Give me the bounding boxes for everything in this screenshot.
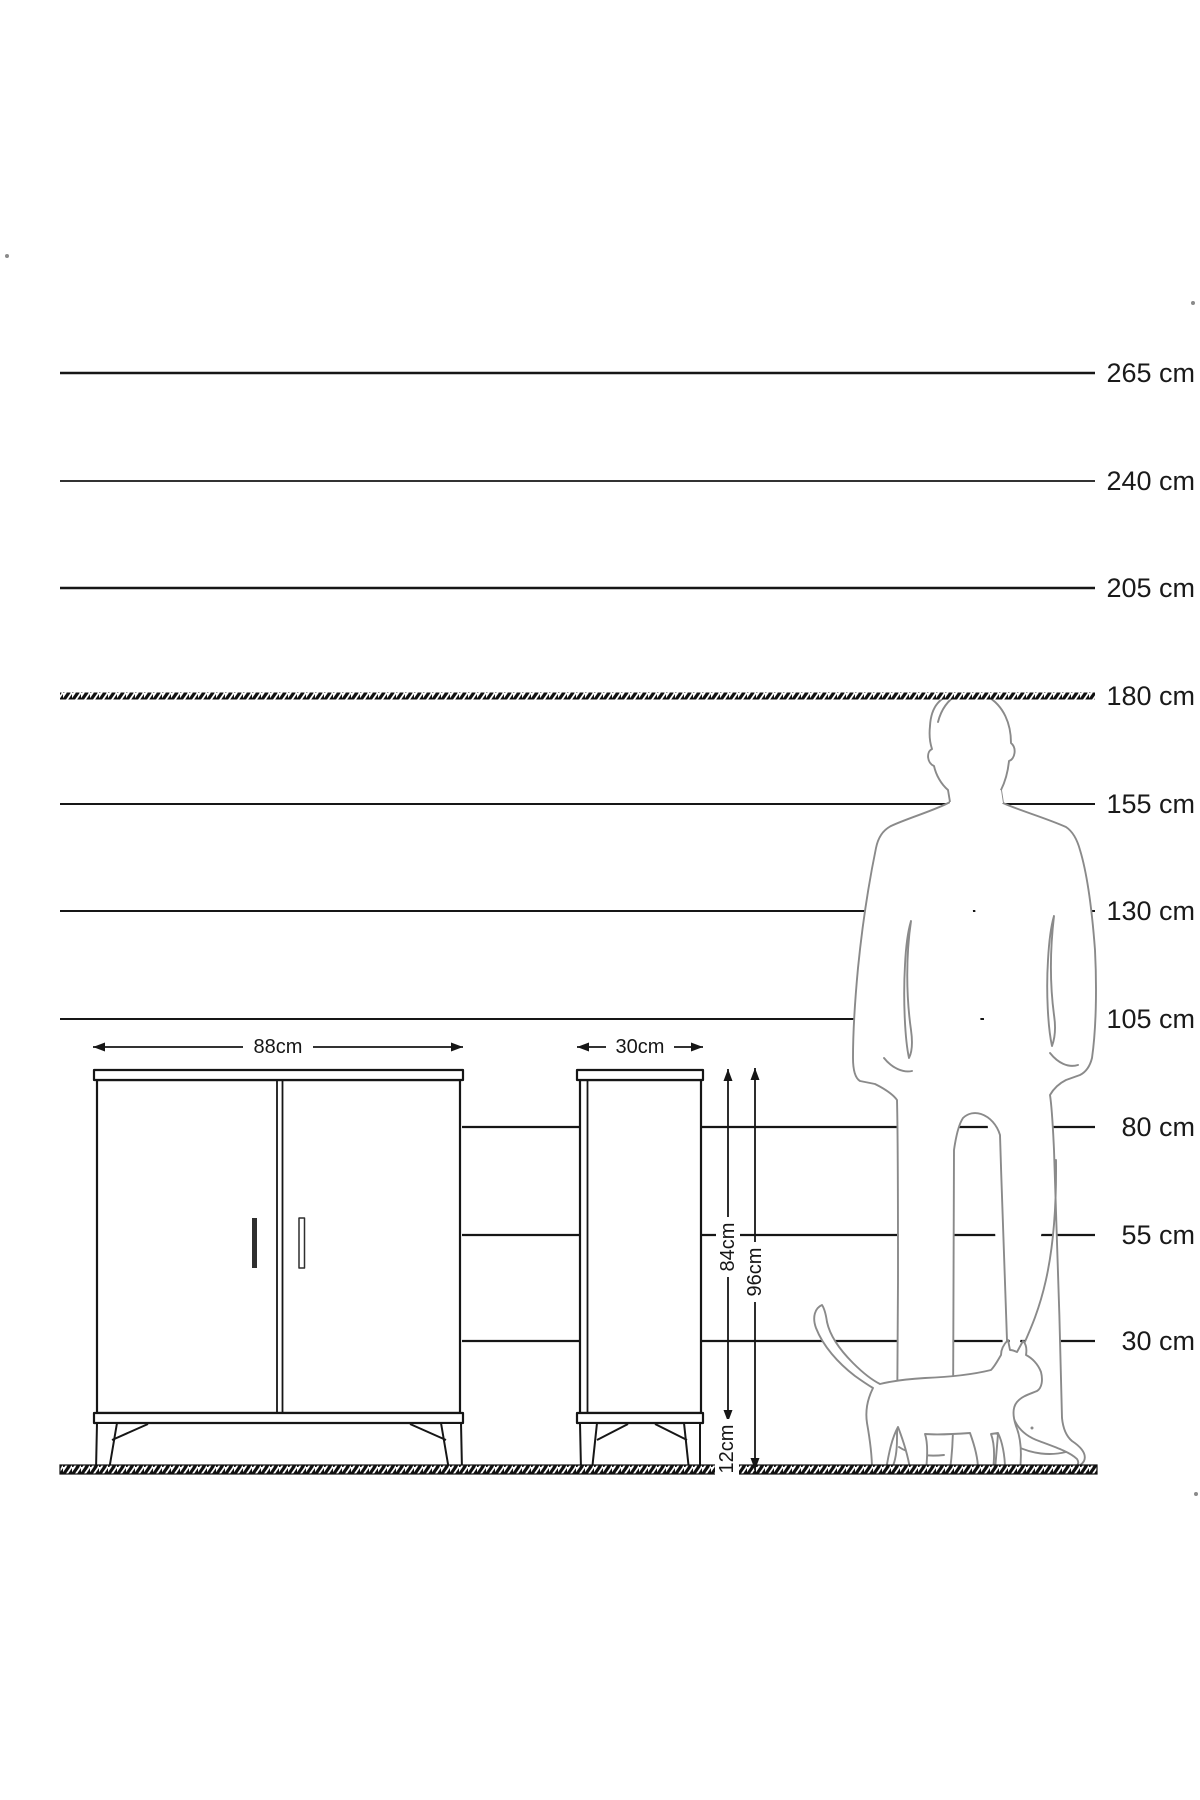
cabinet-leg — [441, 1423, 462, 1470]
cabinet-leg — [96, 1423, 117, 1470]
height-label-180: 180 cm — [1091, 679, 1195, 713]
door-handle-left — [252, 1218, 257, 1268]
ground-line — [60, 1465, 1097, 1474]
height-label-130: 130 cm — [1091, 894, 1195, 928]
height-label-80: 80 cm — [1091, 1110, 1195, 1144]
cabinet-front-view — [94, 1070, 463, 1470]
front-width-label: 88cm — [243, 1035, 313, 1059]
height-line-180-hatched — [60, 693, 1095, 700]
height-label-240: 240 cm — [1091, 464, 1195, 498]
height-label-205: 205 cm — [1091, 571, 1195, 605]
front-legs — [96, 1423, 462, 1470]
body-height-label: 84cm — [716, 1217, 740, 1277]
man-silhouette — [853, 693, 1096, 1470]
total-height-label: 96cm — [743, 1242, 767, 1302]
side-legs — [580, 1423, 700, 1470]
side-bottom-panel — [577, 1413, 703, 1423]
man-outline — [853, 693, 1096, 1470]
front-top-panel — [94, 1070, 463, 1080]
diagram-canvas — [0, 0, 1200, 1800]
cabinet-leg — [580, 1423, 597, 1470]
height-label-55: 55 cm — [1091, 1218, 1195, 1252]
scan-artifact-dot — [1191, 301, 1195, 305]
front-body — [97, 1080, 460, 1413]
side-body — [580, 1080, 701, 1413]
height-label-30: 30 cm — [1091, 1324, 1195, 1358]
cabinet-leg — [684, 1423, 700, 1470]
front-bottom-panel — [94, 1413, 463, 1423]
height-label-155: 155 cm — [1091, 787, 1195, 821]
cabinet-side-view — [577, 1070, 703, 1470]
door-handle-right — [299, 1218, 305, 1268]
dimension-diagram: 265 cm 240 cm 205 cm 180 cm 155 cm 130 c… — [0, 0, 1200, 1800]
leg-height-label: 12cm — [715, 1419, 739, 1479]
scan-artifact-dot — [5, 254, 9, 258]
side-top-panel — [577, 1070, 703, 1080]
scan-artifact-dot — [1031, 1427, 1034, 1430]
side-depth-label: 30cm — [606, 1035, 674, 1059]
height-label-265: 265 cm — [1091, 356, 1195, 390]
height-label-105: 105 cm — [1091, 1002, 1195, 1036]
scan-artifact-dot — [1194, 1492, 1198, 1496]
